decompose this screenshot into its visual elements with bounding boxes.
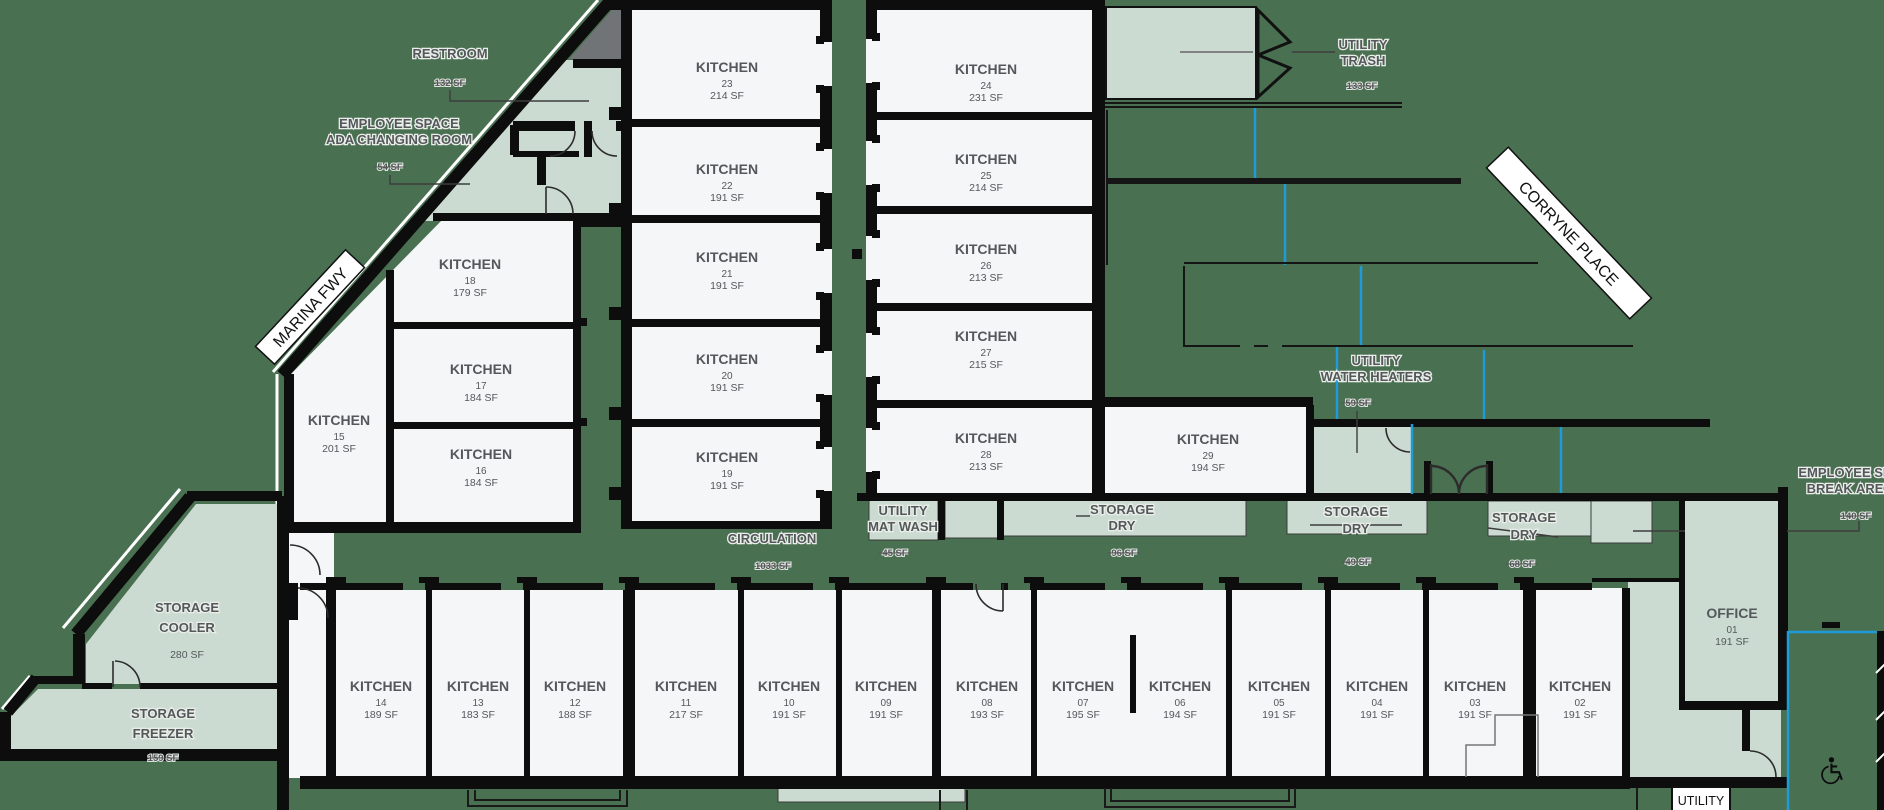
- svg-text:01: 01: [1726, 625, 1738, 636]
- svg-text:EMPLOYEE SPACE: EMPLOYEE SPACE: [339, 116, 459, 131]
- svg-text:191 SF: 191 SF: [710, 480, 744, 492]
- svg-text:13: 13: [472, 698, 484, 709]
- svg-text:KITCHEN: KITCHEN: [955, 241, 1017, 257]
- svg-text:KITCHEN: KITCHEN: [1177, 431, 1239, 447]
- svg-text:280 SF: 280 SF: [170, 649, 204, 661]
- svg-text:191 SF: 191 SF: [772, 709, 806, 721]
- svg-text:183 SF: 183 SF: [461, 709, 495, 721]
- svg-text:18: 18: [464, 276, 476, 287]
- svg-text:KITCHEN: KITCHEN: [696, 449, 758, 465]
- svg-text:UTILITY: UTILITY: [1351, 353, 1400, 368]
- svg-text:03: 03: [1469, 698, 1481, 709]
- svg-text:DRY: DRY: [1109, 518, 1136, 533]
- svg-text:188 SF: 188 SF: [558, 709, 592, 721]
- svg-text:28: 28: [980, 450, 992, 461]
- svg-text:10: 10: [783, 698, 795, 709]
- svg-text:KITCHEN: KITCHEN: [855, 678, 917, 694]
- svg-text:215 SF: 215 SF: [969, 359, 1003, 371]
- svg-text:193 SF: 193 SF: [970, 709, 1004, 721]
- svg-text:KITCHEN: KITCHEN: [655, 678, 717, 694]
- svg-text:KITCHEN: KITCHEN: [696, 351, 758, 367]
- svg-text:25: 25: [980, 171, 992, 182]
- svg-text:FREEZER: FREEZER: [133, 726, 194, 741]
- svg-text:KITCHEN: KITCHEN: [1052, 678, 1114, 694]
- svg-text:23: 23: [721, 79, 733, 90]
- svg-text:KITCHEN: KITCHEN: [544, 678, 606, 694]
- svg-text:191 SF: 191 SF: [710, 192, 744, 204]
- svg-text:KITCHEN: KITCHEN: [1346, 678, 1408, 694]
- svg-text:20: 20: [721, 371, 733, 382]
- svg-text:09: 09: [880, 698, 892, 709]
- svg-text:06: 06: [1174, 698, 1186, 709]
- svg-text:COOLER: COOLER: [159, 620, 215, 635]
- svg-text:KITCHEN: KITCHEN: [447, 678, 509, 694]
- svg-text:DRY: DRY: [1343, 521, 1370, 536]
- svg-text:DRY: DRY: [1511, 527, 1538, 542]
- svg-text:214 SF: 214 SF: [710, 90, 744, 102]
- svg-text:KITCHEN: KITCHEN: [450, 361, 512, 377]
- svg-text:KITCHEN: KITCHEN: [1549, 678, 1611, 694]
- svg-text:KITCHEN: KITCHEN: [350, 678, 412, 694]
- svg-text:BREAK ARE: BREAK ARE: [1807, 481, 1884, 496]
- svg-text:184 SF: 184 SF: [464, 392, 498, 404]
- svg-text:STORAGE: STORAGE: [1324, 504, 1388, 519]
- svg-text:14: 14: [375, 698, 387, 709]
- svg-text:213 SF: 213 SF: [969, 272, 1003, 284]
- svg-text:KITCHEN: KITCHEN: [955, 328, 1017, 344]
- svg-text:29: 29: [1202, 451, 1214, 462]
- svg-text:191 SF: 191 SF: [710, 382, 744, 394]
- svg-text:191 SF: 191 SF: [1563, 709, 1597, 721]
- svg-text:19: 19: [721, 469, 733, 480]
- svg-text:191 SF: 191 SF: [869, 709, 903, 721]
- svg-text:231 SF: 231 SF: [969, 92, 1003, 104]
- svg-text:21: 21: [721, 269, 733, 280]
- svg-text:213 SF: 213 SF: [969, 461, 1003, 473]
- svg-text:194 SF: 194 SF: [1163, 709, 1197, 721]
- svg-text:179 SF: 179 SF: [453, 287, 487, 299]
- svg-text:08: 08: [981, 698, 993, 709]
- svg-text:UTILITY: UTILITY: [878, 503, 927, 518]
- svg-text:STORAGE: STORAGE: [1492, 510, 1556, 525]
- svg-text:07: 07: [1077, 698, 1089, 709]
- svg-text:STORAGE: STORAGE: [155, 600, 219, 615]
- svg-text:214 SF: 214 SF: [969, 182, 1003, 194]
- svg-text:STORAGE: STORAGE: [1090, 502, 1154, 517]
- svg-text:217 SF: 217 SF: [669, 709, 703, 721]
- svg-text:EMPLOYEE SP: EMPLOYEE SP: [1798, 465, 1884, 480]
- svg-text:16: 16: [475, 466, 487, 477]
- svg-text:KITCHEN: KITCHEN: [696, 161, 758, 177]
- svg-text:191 SF: 191 SF: [1458, 709, 1492, 721]
- svg-text:17: 17: [475, 381, 487, 392]
- svg-text:04: 04: [1371, 698, 1383, 709]
- svg-text:26: 26: [980, 261, 992, 272]
- svg-text:191 SF: 191 SF: [710, 280, 744, 292]
- svg-text:RESTROOM: RESTROOM: [412, 46, 487, 61]
- svg-text:MAT WASH: MAT WASH: [868, 519, 938, 534]
- svg-text:KITCHEN: KITCHEN: [955, 151, 1017, 167]
- svg-text:KITCHEN: KITCHEN: [439, 256, 501, 272]
- svg-text:KITCHEN: KITCHEN: [758, 678, 820, 694]
- svg-text:194 SF: 194 SF: [1191, 462, 1225, 474]
- svg-text:191 SF: 191 SF: [1715, 636, 1749, 648]
- svg-text:KITCHEN: KITCHEN: [1444, 678, 1506, 694]
- svg-text:KITCHEN: KITCHEN: [955, 430, 1017, 446]
- svg-text:191 SF: 191 SF: [1262, 709, 1296, 721]
- svg-text:KITCHEN: KITCHEN: [696, 59, 758, 75]
- svg-text:KITCHEN: KITCHEN: [450, 446, 512, 462]
- svg-text:KITCHEN: KITCHEN: [955, 61, 1017, 77]
- svg-text:24: 24: [980, 81, 992, 92]
- svg-text:OFFICE: OFFICE: [1706, 605, 1757, 621]
- svg-text:201 SF: 201 SF: [322, 443, 356, 455]
- svg-text:195 SF: 195 SF: [1066, 709, 1100, 721]
- svg-text:27: 27: [980, 348, 992, 359]
- svg-text:KITCHEN: KITCHEN: [1248, 678, 1310, 694]
- svg-text:22: 22: [721, 181, 733, 192]
- svg-text:KITCHEN: KITCHEN: [308, 412, 370, 428]
- svg-text:CIRCULATION: CIRCULATION: [728, 531, 817, 546]
- svg-text:05: 05: [1273, 698, 1285, 709]
- svg-text:TRASH: TRASH: [1341, 53, 1386, 68]
- svg-text:KITCHEN: KITCHEN: [956, 678, 1018, 694]
- svg-text:184 SF: 184 SF: [464, 477, 498, 489]
- svg-text:12: 12: [569, 698, 581, 709]
- svg-text:KITCHEN: KITCHEN: [1149, 678, 1211, 694]
- svg-text:11: 11: [681, 698, 692, 709]
- svg-text:15: 15: [333, 432, 345, 443]
- svg-text:WATER HEATERS: WATER HEATERS: [1321, 369, 1432, 384]
- svg-text:UTILITY: UTILITY: [1338, 37, 1387, 52]
- svg-text:189 SF: 189 SF: [364, 709, 398, 721]
- svg-text:STORAGE: STORAGE: [131, 706, 195, 721]
- svg-text:ADA CHANGING ROOM: ADA CHANGING ROOM: [326, 132, 472, 147]
- svg-text:UTILITY: UTILITY: [1678, 794, 1725, 808]
- svg-text:02: 02: [1574, 698, 1586, 709]
- svg-text:KITCHEN: KITCHEN: [696, 249, 758, 265]
- svg-text:191 SF: 191 SF: [1360, 709, 1394, 721]
